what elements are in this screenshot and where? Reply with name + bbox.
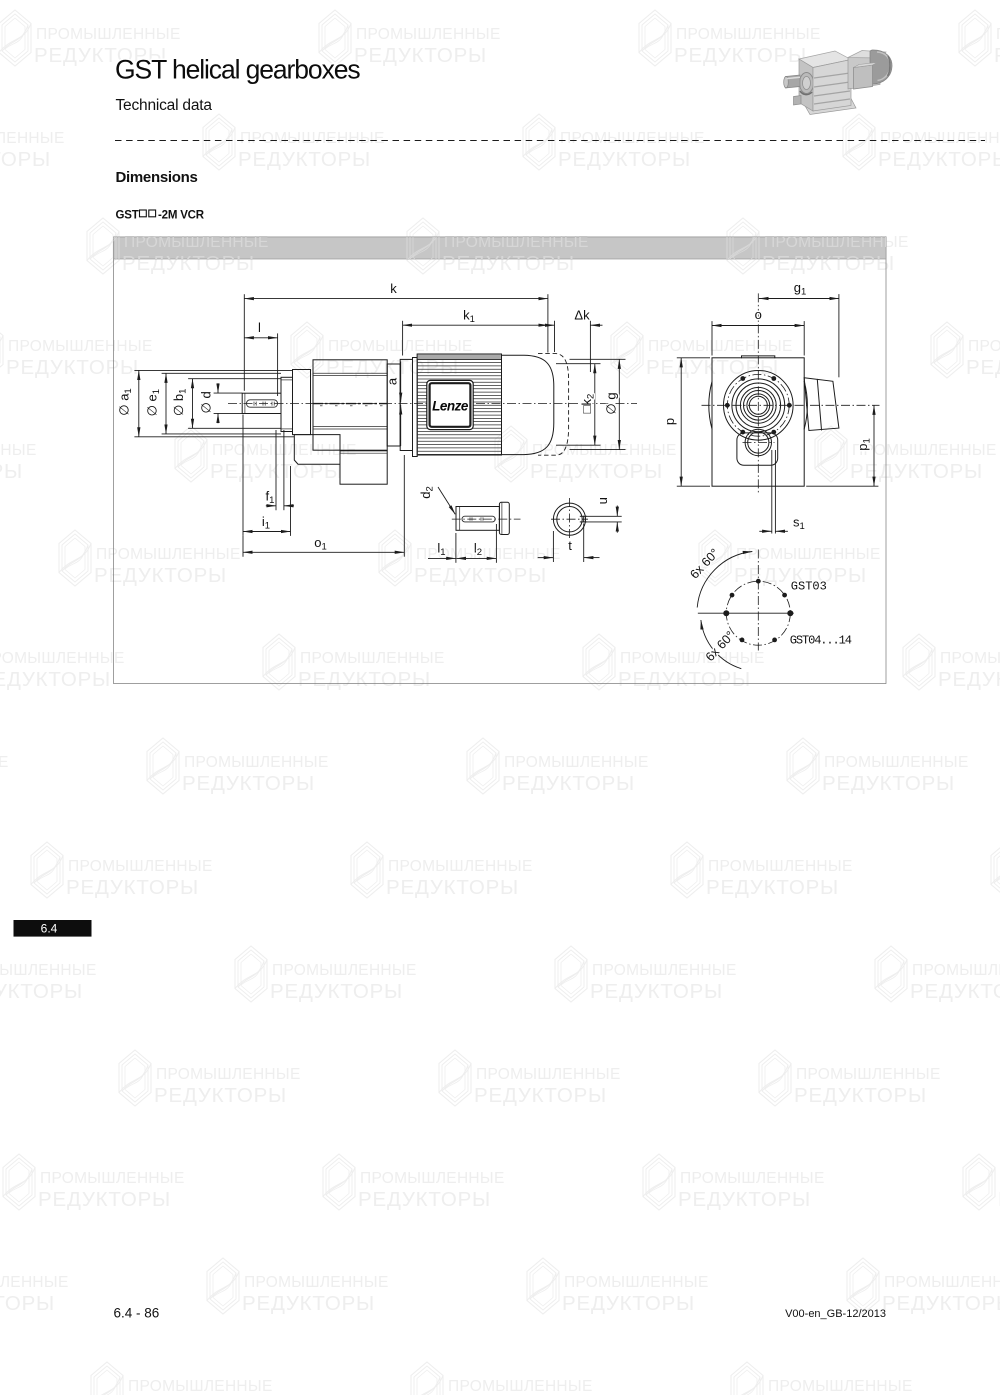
- svg-text:6.4: 6.4: [41, 922, 58, 936]
- svg-text:∅ g: ∅ g: [603, 392, 618, 414]
- svg-text:GST: GST: [116, 210, 139, 222]
- svg-text:GST helical gearboxes: GST helical gearboxes: [115, 55, 360, 85]
- svg-text:o: o: [755, 307, 762, 322]
- svg-text:k: k: [390, 281, 397, 296]
- svg-text:p: p: [662, 418, 677, 425]
- svg-text:V00-en_GB-12/2013: V00-en_GB-12/2013: [785, 1308, 886, 1320]
- svg-text:t: t: [568, 538, 572, 553]
- svg-text:6.4 - 86: 6.4 - 86: [114, 1306, 160, 1321]
- svg-text:u: u: [595, 497, 610, 504]
- svg-text:Lenze: Lenze: [432, 399, 469, 414]
- svg-text:l: l: [258, 320, 261, 335]
- svg-text:Dimensions: Dimensions: [116, 169, 198, 186]
- svg-text:GST03: GST03: [791, 580, 827, 594]
- svg-text:a: a: [385, 377, 400, 385]
- svg-text:∅ d: ∅ d: [199, 391, 214, 413]
- svg-text:GST04...14: GST04...14: [790, 634, 852, 648]
- svg-text:Technical data: Technical data: [116, 97, 213, 114]
- svg-text:Δk: Δk: [574, 308, 590, 323]
- svg-text:-2M VCR: -2M VCR: [158, 210, 205, 222]
